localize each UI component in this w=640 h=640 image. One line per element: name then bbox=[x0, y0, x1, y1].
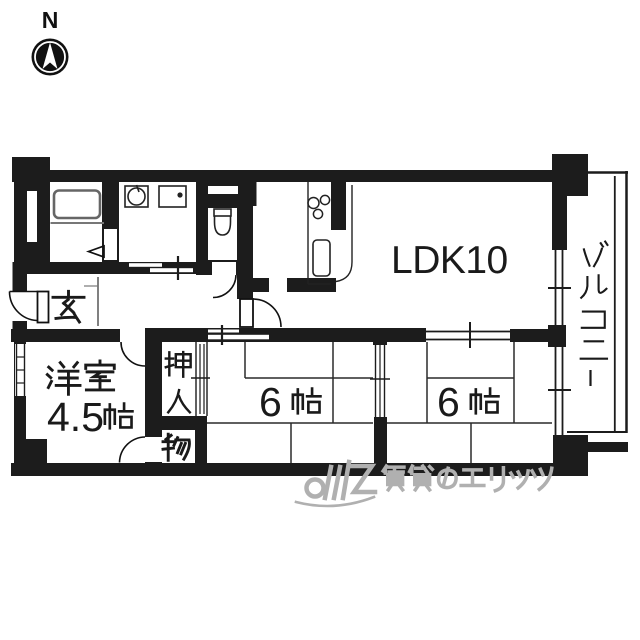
svg-text:LDK10: LDK10 bbox=[391, 239, 508, 282]
svg-text:4.5: 4.5 bbox=[47, 394, 104, 440]
svg-text:N: N bbox=[42, 7, 59, 33]
svg-text:6: 6 bbox=[437, 379, 460, 425]
svg-text:6: 6 bbox=[259, 379, 282, 425]
